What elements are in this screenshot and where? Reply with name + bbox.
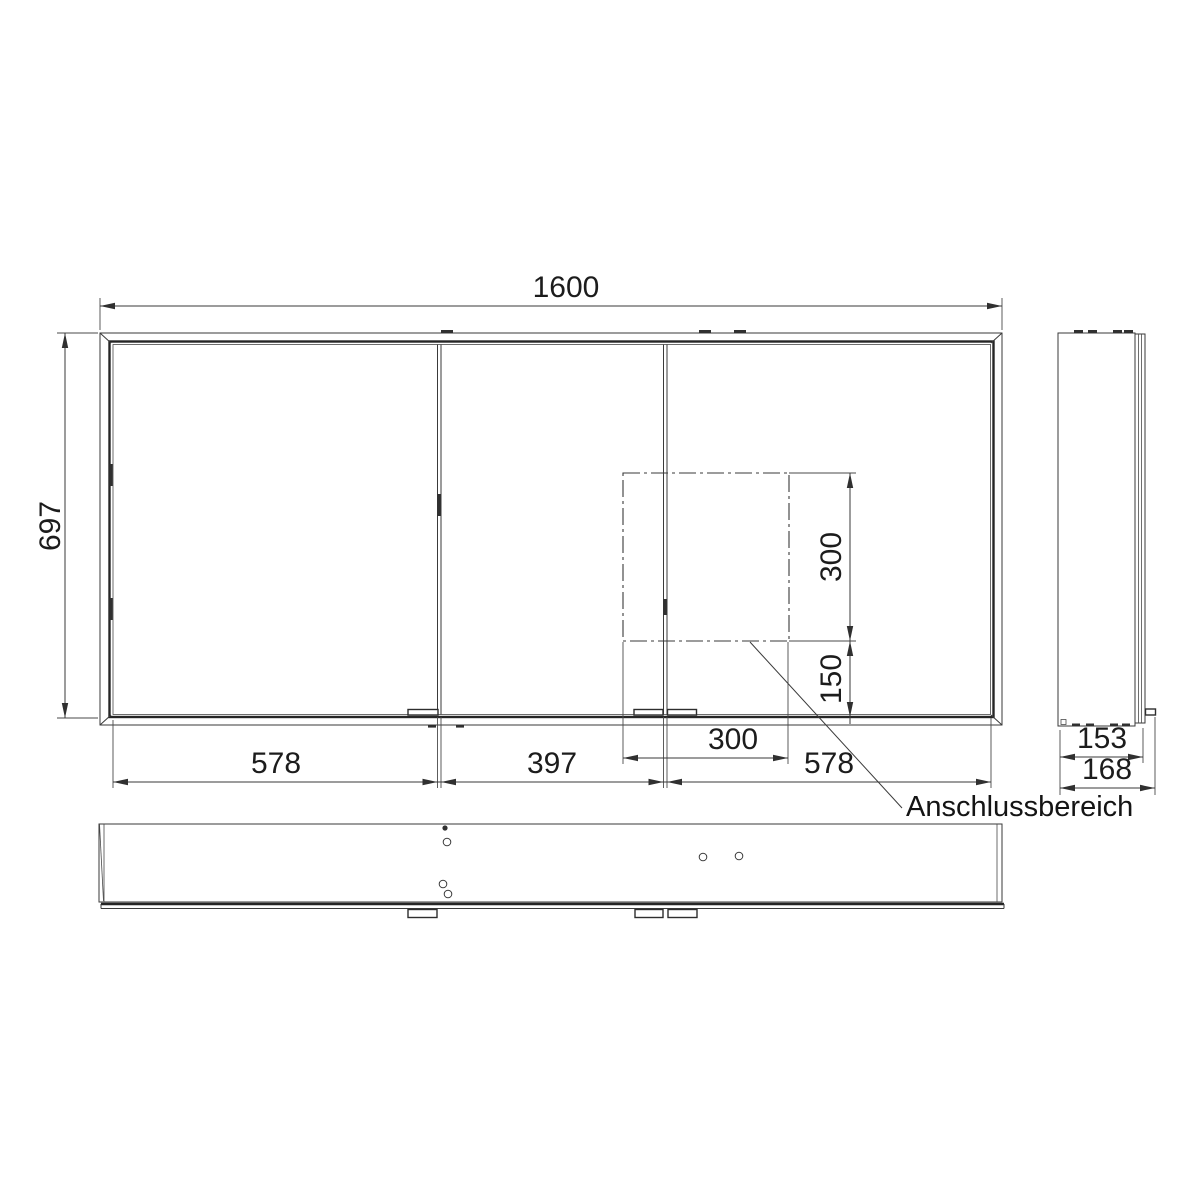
arrowhead-icon	[623, 755, 638, 761]
mounting-bump	[1124, 330, 1133, 333]
dim-connection-offset-label: 150	[815, 654, 848, 704]
front-view	[100, 330, 1002, 728]
door-handle-left	[408, 910, 437, 918]
bottom-clip	[456, 725, 464, 728]
dimension-connection-width: 300	[623, 723, 788, 761]
hinge-mark	[110, 464, 113, 486]
connection-area-label: Anschlussbereich	[906, 791, 1133, 823]
arrowhead-icon	[113, 779, 128, 785]
arrowhead-icon	[441, 779, 456, 785]
top-view-body	[99, 824, 1002, 902]
dim-door-right-label: 578	[804, 747, 854, 780]
dim-total-width-label: 1600	[533, 271, 600, 304]
side-door-slab	[1135, 334, 1145, 723]
mounting-bump	[699, 330, 711, 333]
drill-hole	[442, 825, 447, 830]
dimension-side-depths: 153 168	[1060, 717, 1155, 795]
arrowhead-icon	[423, 779, 438, 785]
door-handle-right	[668, 910, 697, 918]
cabinet-outer-frame	[100, 333, 1002, 725]
arrowhead-icon	[1060, 754, 1075, 760]
dim-door-left-label: 578	[251, 747, 301, 780]
dim-depth-inner-label: 153	[1077, 722, 1127, 755]
dimension-total-width: 1600	[100, 271, 1002, 330]
side-view	[1058, 330, 1156, 727]
technical-drawing-page: 1600 697 578 397 578 300	[0, 0, 1200, 1200]
side-body	[1058, 333, 1135, 726]
mirror-cabinet-drawing: 1600 697 578 397 578 300	[0, 0, 1200, 1200]
arrowhead-icon	[1140, 785, 1155, 791]
bottom-clip	[428, 725, 436, 728]
arrowhead-icon	[649, 779, 664, 785]
mounting-bump	[1113, 330, 1122, 333]
door-handle-middle	[635, 910, 663, 918]
door-handle-left	[408, 710, 438, 716]
mounting-bump	[734, 330, 746, 333]
dimension-total-height: 697	[34, 333, 98, 718]
arrowhead-icon	[62, 703, 68, 718]
side-door-handle	[1146, 709, 1156, 715]
dimension-door-widths: 578 397 578	[113, 717, 991, 788]
mounting-bump	[1074, 330, 1083, 333]
dim-connection-height-label: 300	[815, 532, 848, 582]
arrowhead-icon	[976, 779, 991, 785]
mounting-bump	[1088, 330, 1097, 333]
top-view	[99, 824, 1004, 918]
dim-total-height-label: 697	[34, 501, 67, 551]
dim-door-middle-label: 397	[527, 747, 577, 780]
dim-connection-width-label: 300	[708, 723, 758, 756]
hinge-mark	[437, 494, 440, 516]
dim-depth-total-label: 168	[1082, 753, 1132, 786]
side-foot-detail	[1061, 720, 1066, 725]
arrowhead-icon	[773, 755, 788, 761]
arrowhead-icon	[987, 303, 1002, 309]
arrowhead-icon	[100, 303, 115, 309]
hinge-mark	[110, 598, 113, 620]
arrowhead-icon	[667, 779, 682, 785]
hinge-mark	[663, 599, 666, 615]
door-handle-middle	[634, 710, 663, 716]
door-handle-right	[668, 710, 697, 716]
arrowhead-icon	[62, 333, 68, 348]
mounting-bump	[441, 330, 453, 333]
